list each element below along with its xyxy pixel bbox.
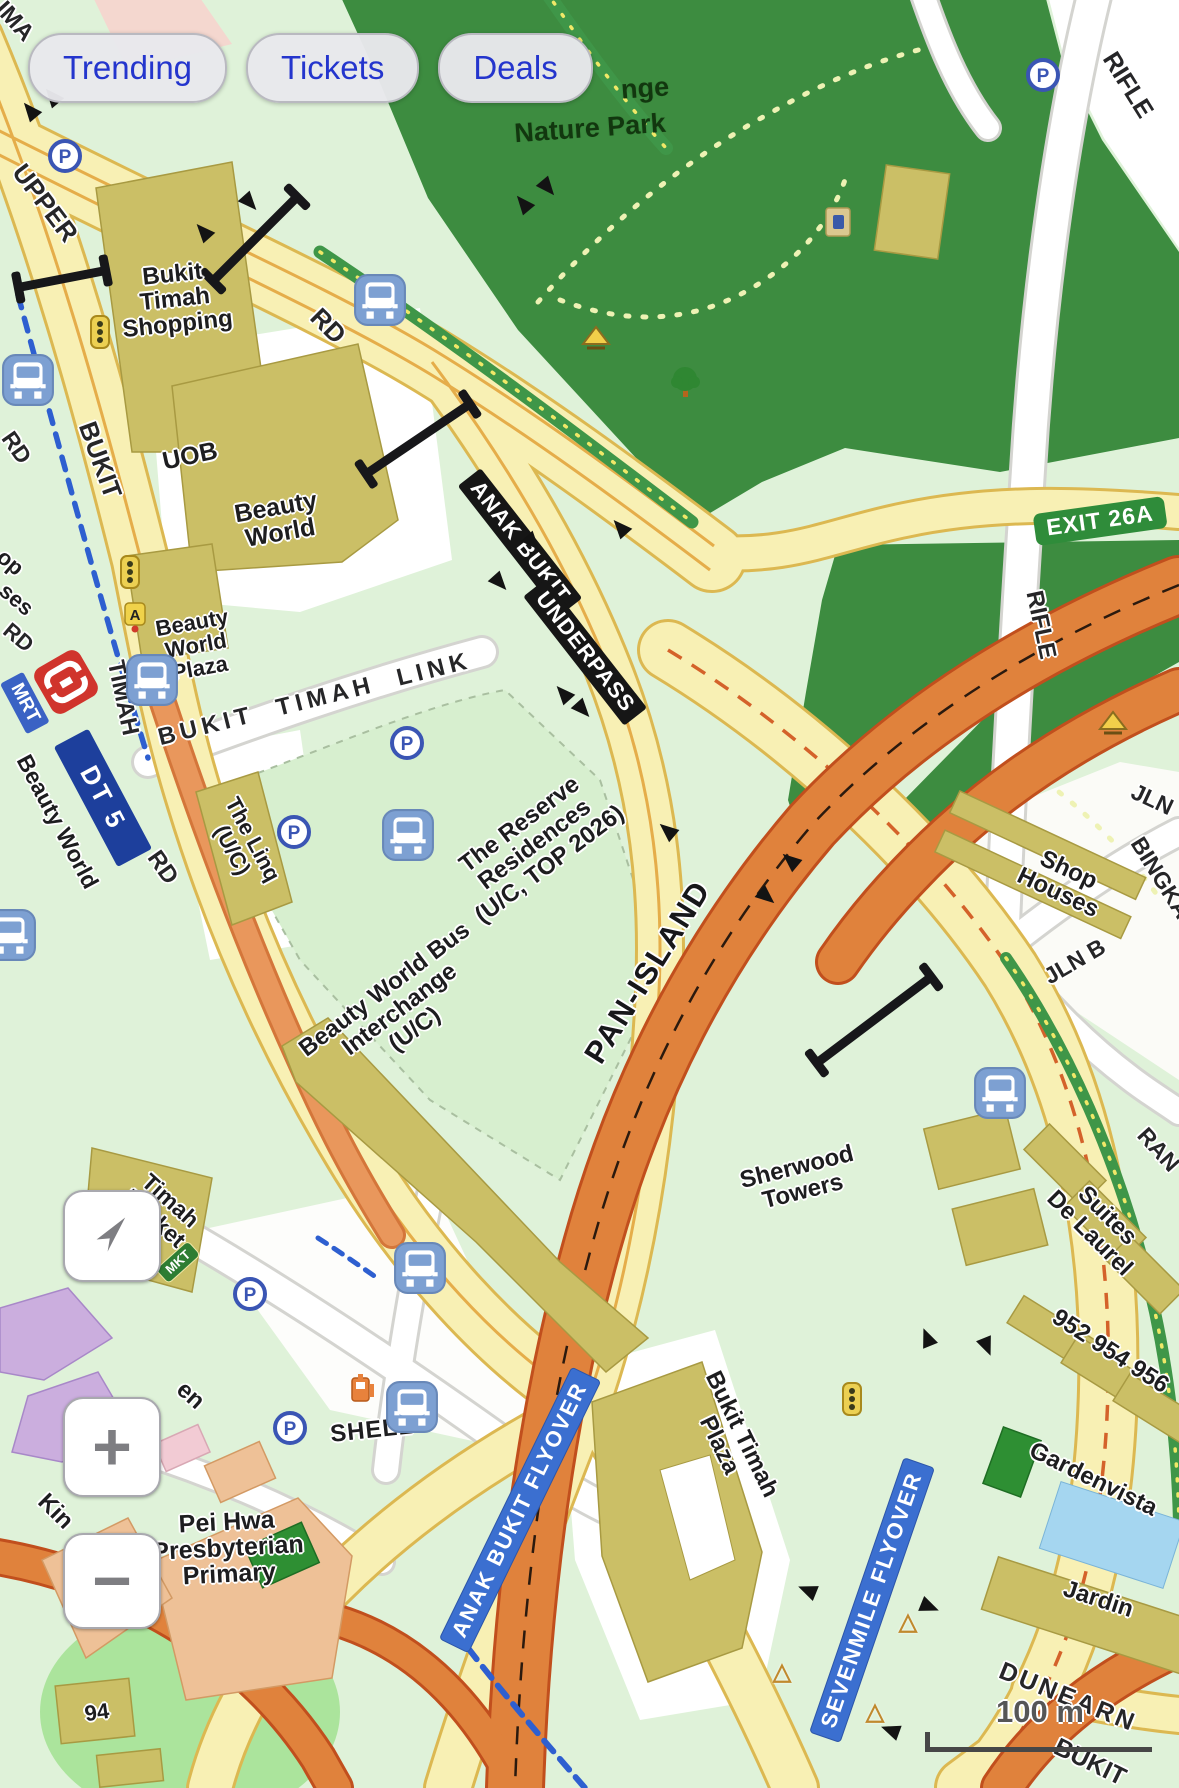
one-way-arrow-icon	[608, 515, 633, 540]
map-label: Beauty World Bus Interchange (U/C)	[295, 918, 505, 1102]
map-label: UOB	[160, 438, 220, 475]
hut-icon	[824, 206, 852, 238]
map-label: PAN-ISLAND	[579, 875, 717, 1069]
svg-text:P: P	[1037, 66, 1050, 87]
bus-icon[interactable]	[1, 353, 55, 407]
parking-icon[interactable]: P	[272, 1410, 308, 1446]
map-overlay: IMAUPPERBUKITRDopsesRDTIMAHRDRDBUKIT TIM…	[0, 0, 1179, 1788]
parking-icon[interactable]: P	[276, 814, 312, 850]
one-way-arrow-icon	[918, 1596, 942, 1618]
map-label: 952 954 956	[1047, 1305, 1173, 1399]
map-label: Sherwood Towers	[738, 1142, 863, 1218]
one-way-arrow-icon	[976, 1335, 998, 1359]
map-label: Kin	[33, 1490, 78, 1535]
one-way-arrow-icon	[536, 176, 560, 201]
map-label: BUKIT	[74, 418, 127, 502]
map-label: Beauty World	[232, 487, 323, 553]
bus-icon[interactable]	[393, 1241, 447, 1295]
parking-icon[interactable]: P	[389, 725, 425, 761]
plus-icon: +	[92, 1408, 132, 1486]
map-label: Shop Houses	[1013, 841, 1113, 923]
zoom-out-button[interactable]: −	[63, 1533, 161, 1629]
one-way-arrow-icon	[488, 571, 513, 596]
map-label: RD	[142, 847, 182, 890]
map-label: Bukit Timah Plaza	[678, 1368, 783, 1513]
parking-icon[interactable]: P	[47, 138, 83, 174]
one-way-arrow-icon	[238, 191, 263, 216]
svg-text:P: P	[244, 1285, 257, 1306]
svg-text:P: P	[284, 1419, 297, 1440]
map-label: Nature Park	[513, 109, 666, 148]
one-way-arrow-icon	[778, 848, 803, 872]
map-label: The Linq (U/C)	[200, 794, 283, 896]
tree-icon	[667, 364, 703, 400]
scale-label: 100 m	[925, 1694, 1155, 1730]
svg-text:P: P	[288, 823, 301, 844]
map-label: op	[0, 546, 28, 581]
tickets-chip[interactable]: Tickets	[246, 33, 419, 103]
zoom-in-button[interactable]: +	[63, 1397, 161, 1497]
map-label: RD	[305, 303, 351, 349]
map-label: JLN B	[1040, 935, 1110, 989]
map-label: nge	[620, 72, 670, 103]
traffic-light-icon	[119, 554, 141, 590]
minus-icon: −	[92, 1542, 132, 1620]
yield-marking-icon: △	[773, 1658, 791, 1687]
map-label: Jardin	[1060, 1577, 1136, 1623]
deals-chip[interactable]: Deals	[438, 33, 592, 103]
parking-icon[interactable]: P	[232, 1276, 268, 1312]
map-label: en	[171, 1377, 209, 1414]
map-label: EXIT 26A	[1033, 496, 1168, 546]
bus-icon[interactable]	[353, 273, 407, 327]
svg-text:P: P	[401, 734, 414, 755]
map-label: ANAK BUKIT FLYOVER	[439, 1367, 601, 1654]
map-label: The Reserve Residences (U/C, TOP 2026)	[441, 761, 629, 929]
svg-text:A: A	[130, 607, 141, 624]
map-label: RD	[0, 428, 35, 469]
bus-icon[interactable]	[385, 1380, 439, 1434]
bus-icon[interactable]	[381, 808, 435, 862]
traffic-light-icon	[841, 1381, 863, 1417]
yield-marking-icon: △	[866, 1698, 884, 1727]
map-label: ANAK BUKIT	[458, 468, 582, 616]
traffic-light-icon	[89, 314, 111, 350]
bus-icon[interactable]	[125, 653, 179, 707]
scale-bar: 100 m	[925, 1694, 1155, 1752]
parking-icon[interactable]: P	[1025, 57, 1061, 93]
map-canvas[interactable]: IMAUPPERBUKITRDopsesRDTIMAHRDRDBUKIT TIM…	[0, 0, 1179, 1788]
map-label: 94	[83, 1700, 110, 1726]
map-label: BINGKA	[1126, 833, 1179, 923]
one-way-arrow-icon	[511, 191, 535, 216]
map-label: RIFLE	[1021, 588, 1060, 661]
one-way-arrow-icon	[795, 1579, 819, 1601]
fuel-icon	[348, 1372, 376, 1404]
one-way-arrow-icon	[916, 1325, 938, 1349]
map-label: RD	[0, 619, 38, 657]
map-label: Gardenvista	[1025, 1438, 1161, 1521]
map-label: Pei Hwa Presbyterian Primary	[150, 1505, 305, 1591]
trending-chip[interactable]: Trending	[28, 33, 227, 103]
map-label: RIFLE	[1098, 47, 1158, 122]
shelter-icon	[580, 324, 612, 352]
bus-icon[interactable]	[0, 908, 37, 962]
map-label: RAN	[1132, 1123, 1179, 1176]
map-label: Suites De Laurel	[1042, 1169, 1155, 1282]
one-way-arrow-icon	[655, 818, 680, 842]
yield-marking-icon: △	[899, 1608, 917, 1637]
one-way-arrow-icon	[191, 219, 216, 244]
scale-line	[925, 1732, 1152, 1752]
svg-text:P: P	[59, 147, 72, 168]
a-badge-icon: A	[123, 601, 147, 633]
one-way-arrow-icon	[755, 885, 780, 909]
one-way-arrow-icon	[571, 698, 596, 723]
map-label: ses	[0, 579, 37, 620]
bus-icon[interactable]	[973, 1066, 1027, 1120]
shelter-icon	[1097, 709, 1129, 737]
chip-bar: Trending Tickets Deals	[28, 33, 593, 103]
locate-arrow-icon	[90, 1212, 134, 1261]
map-label: Bukit Timah Shopping	[116, 257, 234, 343]
map-label: JLN	[1127, 780, 1176, 820]
one-way-arrow-icon	[551, 681, 576, 706]
locate-button[interactable]	[63, 1190, 161, 1282]
